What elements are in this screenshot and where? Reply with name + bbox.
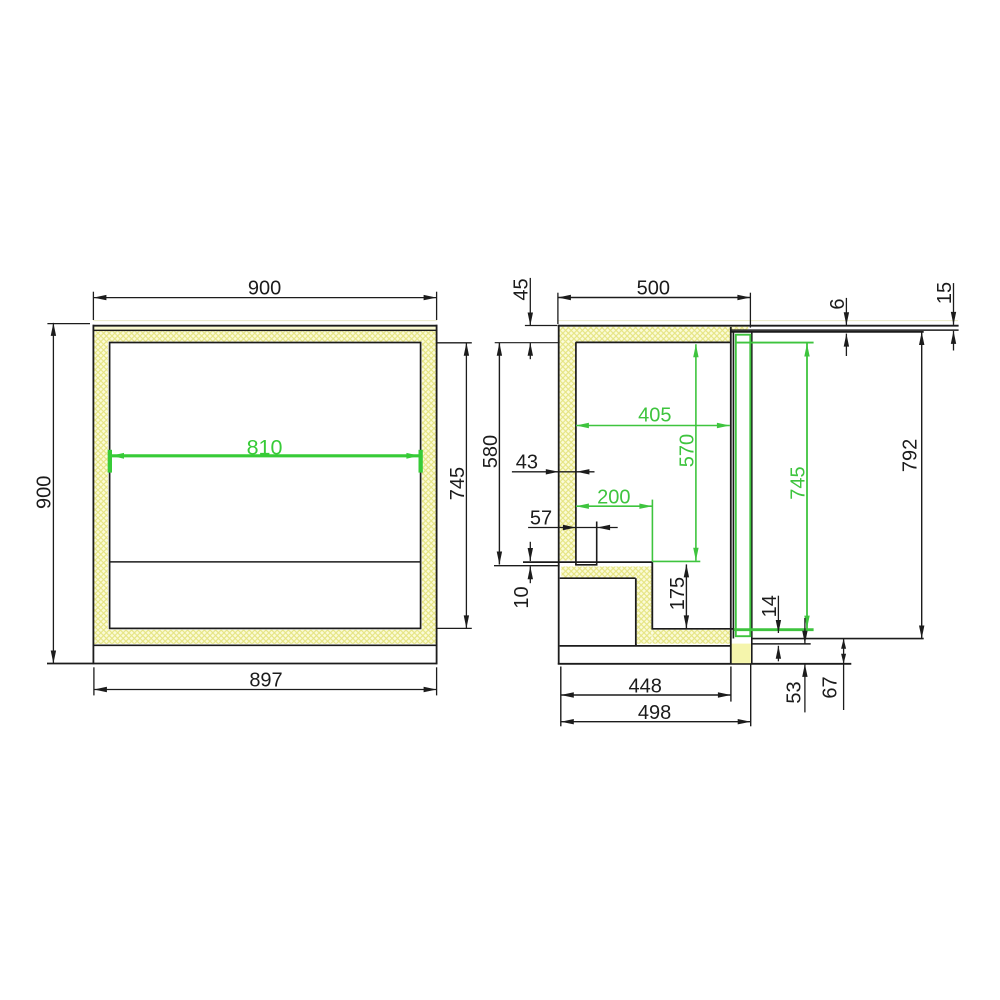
svg-text:15: 15 [934,282,956,304]
svg-text:500: 500 [637,278,670,300]
svg-text:14: 14 [759,595,781,617]
svg-text:45: 45 [511,278,533,300]
svg-text:200: 200 [597,487,630,509]
svg-text:900: 900 [34,476,56,509]
svg-text:745: 745 [788,466,810,499]
svg-text:175: 175 [667,577,689,610]
svg-text:6: 6 [827,298,849,309]
svg-text:570: 570 [676,434,698,467]
svg-text:810: 810 [247,436,283,460]
svg-text:53: 53 [784,681,806,703]
svg-text:897: 897 [249,670,282,692]
svg-text:448: 448 [629,676,662,698]
svg-text:900: 900 [248,278,281,300]
svg-text:57: 57 [530,508,552,530]
svg-text:43: 43 [516,452,538,474]
svg-text:580: 580 [480,435,502,468]
svg-text:745: 745 [447,467,469,500]
svg-text:792: 792 [899,439,921,472]
svg-text:498: 498 [638,702,671,724]
svg-text:405: 405 [638,405,671,427]
svg-text:10: 10 [511,586,533,608]
svg-text:67: 67 [819,676,841,698]
